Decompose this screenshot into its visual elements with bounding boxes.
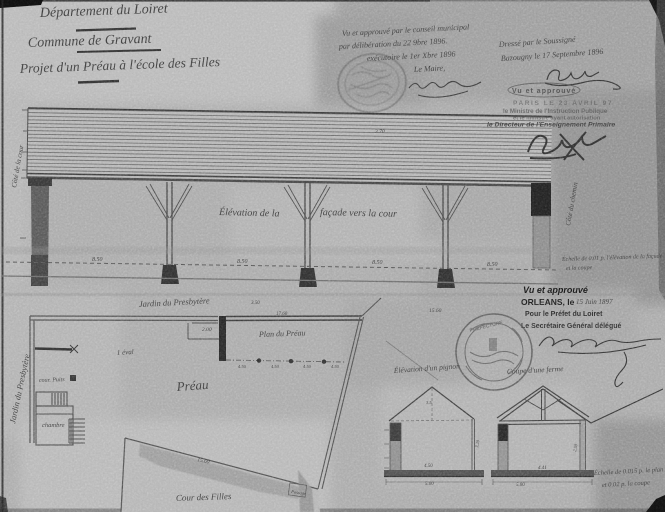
svg-text:8.50: 8.50	[92, 257, 103, 263]
svg-text:le Directeur de l'Enseignement: le Directeur de l'Enseignement Primaire	[487, 122, 615, 129]
svg-text:PARIS LE 23 AVRIL 97: PARIS LE 23 AVRIL 97	[513, 100, 613, 107]
svg-text:Cour des Filles: Cour des Filles	[176, 491, 232, 503]
svg-text:Le Secrétaire Général délégué: Le Secrétaire Général délégué	[521, 323, 621, 330]
svg-text:Plan du Préau: Plan du Préau	[258, 328, 306, 339]
svg-text:chambre: chambre	[42, 422, 65, 429]
svg-text:5.00: 5.00	[425, 482, 434, 487]
svg-text:1 éval: 1 éval	[117, 348, 134, 357]
svg-text:4.50: 4.50	[424, 464, 433, 469]
svg-text:ORLEANS, le: ORLEANS, le	[521, 297, 575, 307]
svg-text:4.41: 4.41	[538, 466, 547, 471]
svg-text:15.60: 15.60	[429, 308, 442, 314]
svg-text:3.50: 3.50	[251, 301, 260, 306]
svg-text:Pour le Préfet du Loiret: Pour le Préfet du Loiret	[525, 311, 603, 318]
svg-text:5.00: 5.00	[516, 483, 525, 488]
svg-text:8.50: 8.50	[237, 259, 248, 265]
svg-text:15 Juin 1897: 15 Juin 1897	[576, 298, 613, 306]
svg-text:le Ministre de l'Instruction P: le Ministre de l'Instruction Publique	[503, 108, 608, 115]
svg-text:Élévation de la: Élévation de la	[218, 206, 280, 220]
svg-text:4.50: 4.50	[271, 364, 280, 369]
svg-text:17.60: 17.60	[276, 312, 288, 317]
svg-text:4.50: 4.50	[303, 364, 312, 369]
svg-text:3.5: 3.5	[426, 400, 432, 405]
svg-text:Préau: Préau	[175, 377, 209, 394]
svg-text:3.70: 3.70	[374, 129, 385, 135]
svg-text:façade vers la cour: façade vers la cour	[320, 207, 397, 220]
svg-text:4.50: 4.50	[238, 364, 247, 369]
svg-text:8.50: 8.50	[372, 260, 383, 266]
svg-text:2.00: 2.00	[202, 327, 212, 333]
svg-text:Vu et approuvé: Vu et approuvé	[523, 285, 588, 295]
svg-text:et la coupe: et la coupe	[566, 265, 593, 272]
svg-text:8.50: 8.50	[487, 262, 498, 268]
svg-text:Vu et approuvé: Vu et approuvé	[512, 88, 576, 95]
svg-text:4.50: 4.50	[331, 364, 340, 369]
svg-text:cour. Puits: cour. Puits	[39, 377, 66, 384]
svg-text:Le Maire,: Le Maire,	[413, 63, 446, 74]
